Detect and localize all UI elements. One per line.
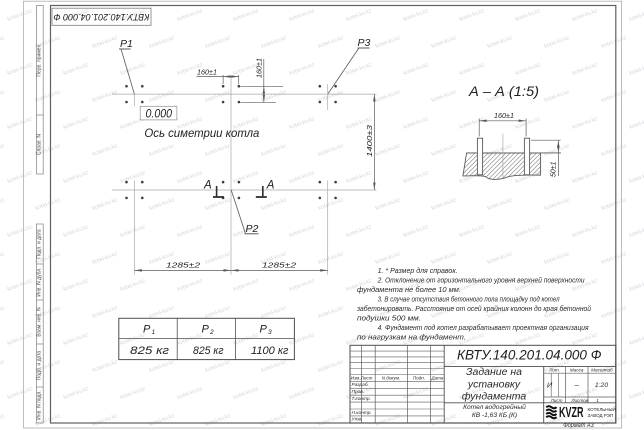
svg-text:1400±3: 1400±3 (365, 125, 374, 157)
svg-text:kotel-kv.kz: kotel-kv.kz (0, 251, 6, 266)
svg-text:kotel-kv.kz: kotel-kv.kz (120, 386, 147, 401)
svg-text:Р: Р (202, 324, 210, 336)
svg-text:kotel-kv.kz: kotel-kv.kz (375, 35, 402, 50)
svg-text:kotel-kv.kz: kotel-kv.kz (261, 359, 288, 374)
svg-text:kotel-kv.kz: kotel-kv.kz (149, 143, 176, 158)
svg-text:КВ -1,63 КБ (К): КВ -1,63 КБ (К) (472, 412, 517, 419)
svg-text:kotel-kv.kz: kotel-kv.kz (431, 251, 458, 266)
svg-text:kotel-kv.kz: kotel-kv.kz (35, 89, 62, 104)
svg-text:3. В случае отсутствия бет: 3. В случае отсутствия бетонного пола пл… (378, 295, 561, 304)
svg-text:Р2: Р2 (246, 223, 259, 235)
svg-text:подушки 500 мм.: подушки 500 мм. (357, 314, 421, 323)
svg-text:kotel-kv.kz: kotel-kv.kz (63, 386, 90, 401)
svg-text:kotel-kv.kz: kotel-kv.kz (92, 251, 119, 266)
svg-text:kotel-kv.kz: kotel-kv.kz (177, 224, 204, 239)
svg-text:1285±2: 1285±2 (262, 261, 296, 270)
svg-text:kotel-kv.kz: kotel-kv.kz (318, 89, 345, 104)
svg-text:kotel-kv.kz: kotel-kv.kz (572, 116, 599, 131)
svg-text:kotel-kv.kz: kotel-kv.kz (92, 35, 119, 50)
svg-text:kotel-kv.kz: kotel-kv.kz (0, 413, 6, 428)
svg-text:kotel-kv.kz: kotel-kv.kz (431, 197, 458, 212)
svg-text:Изм.Лист: Изм.Лист (351, 375, 373, 380)
svg-text:kotel-kv.kz: kotel-kv.kz (261, 197, 288, 212)
svg-text:kotel-kv.kz: kotel-kv.kz (515, 224, 542, 239)
svg-text:kotel-kv.kz: kotel-kv.kz (572, 8, 599, 23)
svg-text:КВТУ.140.201.04.000 Ф: КВТУ.140.201.04.000 Ф (457, 348, 602, 363)
svg-text:kotel-kv.kz: kotel-kv.kz (515, 62, 542, 77)
svg-text:Подп. и дата: Подп. и дата (36, 351, 42, 381)
svg-text:kotel-kv.kz: kotel-kv.kz (7, 332, 34, 347)
svg-text:kotel-kv.kz: kotel-kv.kz (487, 143, 514, 158)
svg-text:1100 кг: 1100 кг (251, 345, 289, 357)
svg-text:Инв. N дубл.: Инв. N дубл. (36, 267, 42, 296)
svg-text:50±1: 50±1 (549, 161, 558, 177)
svg-text:kotel-kv.kz: kotel-kv.kz (318, 143, 345, 158)
svg-text:kotel-kv.kz: kotel-kv.kz (431, 143, 458, 158)
svg-text:kotel-kv.kz: kotel-kv.kz (0, 143, 6, 158)
svg-text:KVZR: KVZR (559, 405, 584, 421)
svg-text:А – А (1:5): А – А (1:5) (468, 84, 539, 99)
svg-text:kotel-kv.kz: kotel-kv.kz (629, 278, 644, 293)
svg-text:установку: установку (467, 379, 521, 391)
svg-text:160±1: 160±1 (197, 67, 217, 76)
svg-text:Ось симетрии котла: Ось симетрии котла (144, 126, 259, 140)
svg-text:kotel-kv.kz: kotel-kv.kz (403, 224, 430, 239)
svg-text:kotel-kv.kz: kotel-kv.kz (346, 62, 373, 77)
svg-text:kotel-kv.kz: kotel-kv.kz (403, 62, 430, 77)
svg-text:kotel-kv.kz: kotel-kv.kz (0, 35, 6, 50)
svg-text:kotel-kv.kz: kotel-kv.kz (92, 413, 119, 428)
svg-text:Инв. N подл.: Инв. N подл. (36, 390, 42, 419)
svg-text:kotel-kv.kz: kotel-kv.kz (318, 251, 345, 266)
svg-text:по нагрузкам на фундамент.: по нагрузкам на фундамент. (357, 333, 466, 342)
svg-text:kotel-kv.kz: kotel-kv.kz (459, 62, 486, 77)
svg-text:0.000: 0.000 (146, 108, 173, 120)
svg-text:kotel-kv.kz: kotel-kv.kz (572, 170, 599, 185)
svg-text:kotel-kv.kz: kotel-kv.kz (233, 386, 260, 401)
svg-text:kotel-kv.kz: kotel-kv.kz (375, 251, 402, 266)
svg-text:kotel-kv.kz: kotel-kv.kz (261, 143, 288, 158)
svg-text:kotel-kv.kz: kotel-kv.kz (7, 62, 34, 77)
svg-text:kotel-kv.kz: kotel-kv.kz (572, 62, 599, 77)
svg-text:825 кг: 825 кг (130, 345, 170, 357)
svg-text:фундамента: фундамента (462, 391, 527, 403)
svg-text:Утв.: Утв. (352, 417, 363, 423)
svg-text:kotel-kv.kz: kotel-kv.kz (289, 170, 316, 185)
svg-text:kotel-kv.kz: kotel-kv.kz (318, 359, 345, 374)
svg-text:kotel-kv.kz: kotel-kv.kz (289, 224, 316, 239)
svg-text:3: 3 (268, 329, 272, 336)
svg-text:kotel-kv.kz: kotel-kv.kz (233, 278, 260, 293)
svg-text:КОТЕЛЬНЫЙ: КОТЕЛЬНЫЙ (588, 405, 616, 412)
svg-text:kotel-kv.kz: kotel-kv.kz (205, 89, 232, 104)
svg-text:kotel-kv.kz: kotel-kv.kz (177, 386, 204, 401)
svg-text:kotel-kv.kz: kotel-kv.kz (375, 89, 402, 104)
svg-text:kotel-kv.kz: kotel-kv.kz (375, 359, 402, 374)
svg-text:kotel-kv.kz: kotel-kv.kz (177, 170, 204, 185)
svg-text:kotel-kv.kz: kotel-kv.kz (289, 386, 316, 401)
svg-text:kotel-kv.kz: kotel-kv.kz (515, 8, 542, 23)
svg-text:Листов: Листов (570, 398, 588, 403)
svg-text:2: 2 (209, 329, 214, 336)
svg-text:kotel-kv.kz: kotel-kv.kz (601, 89, 628, 104)
svg-text:Дата: Дата (430, 375, 444, 380)
svg-text:kotel-kv.kz: kotel-kv.kz (205, 359, 232, 374)
svg-text:kotel-kv.kz: kotel-kv.kz (92, 143, 119, 158)
svg-text:Лит.: Лит. (548, 368, 560, 373)
svg-text:kotel-kv.kz: kotel-kv.kz (205, 251, 232, 266)
svg-text:kotel-kv.kz: kotel-kv.kz (629, 62, 644, 77)
svg-text:1:20: 1:20 (595, 382, 608, 389)
svg-text:И: И (547, 381, 553, 390)
svg-text:kotel-kv.kz: kotel-kv.kz (544, 251, 571, 266)
svg-text:kotel-kv.kz: kotel-kv.kz (515, 332, 542, 347)
svg-text:kotel-kv.kz: kotel-kv.kz (289, 278, 316, 293)
svg-text:Справ. N: Справ. N (36, 134, 42, 155)
svg-text:ЗАВОД РЭП: ЗАВОД РЭП (588, 413, 614, 418)
svg-text:Пров.: Пров. (352, 389, 365, 395)
svg-text:kotel-kv.kz: kotel-kv.kz (629, 116, 644, 131)
svg-text:N докум.: N докум. (382, 375, 401, 380)
svg-text:Р3: Р3 (358, 37, 371, 49)
svg-text:kotel-kv.kz: kotel-kv.kz (149, 305, 176, 320)
svg-text:kotel-kv.kz: kotel-kv.kz (205, 143, 232, 158)
svg-text:1. * Размер для справок.: 1. * Размер для справок. (378, 266, 458, 275)
svg-text:kotel-kv.kz: kotel-kv.kz (0, 359, 6, 374)
svg-text:kotel-kv.kz: kotel-kv.kz (63, 278, 90, 293)
svg-text:kotel-kv.kz: kotel-kv.kz (403, 8, 430, 23)
svg-text:kotel-kv.kz: kotel-kv.kz (0, 197, 6, 212)
svg-text:kotel-kv.kz: kotel-kv.kz (233, 8, 260, 23)
svg-text:kotel-kv.kz: kotel-kv.kz (346, 224, 373, 239)
svg-text:kotel-kv.kz: kotel-kv.kz (149, 35, 176, 50)
svg-text:kotel-kv.kz: kotel-kv.kz (318, 197, 345, 212)
svg-text:Задание на: Задание на (466, 366, 522, 378)
svg-text:kotel-kv.kz: kotel-kv.kz (7, 386, 34, 401)
svg-text:kotel-kv.kz: kotel-kv.kz (205, 305, 232, 320)
svg-text:kotel-kv.kz: kotel-kv.kz (318, 35, 345, 50)
svg-text:kotel-kv.kz: kotel-kv.kz (92, 359, 119, 374)
svg-text:–: – (574, 380, 580, 389)
svg-text:kotel-kv.kz: kotel-kv.kz (431, 35, 458, 50)
svg-text:Р: Р (143, 324, 151, 336)
svg-text:kotel-kv.kz: kotel-kv.kz (572, 224, 599, 239)
svg-text:kotel-kv.kz: kotel-kv.kz (629, 170, 644, 185)
svg-text:kotel-kv.kz: kotel-kv.kz (289, 332, 316, 347)
svg-text:Лист: Лист (550, 398, 563, 403)
svg-text:kotel-kv.kz: kotel-kv.kz (459, 224, 486, 239)
svg-text:kotel-kv.kz: kotel-kv.kz (544, 143, 571, 158)
svg-text:kotel-kv.kz: kotel-kv.kz (289, 62, 316, 77)
svg-text:kotel-kv.kz: kotel-kv.kz (487, 35, 514, 50)
svg-text:kotel-kv.kz: kotel-kv.kz (149, 413, 176, 428)
svg-text:4. Фундамент под котел раз: 4. Фундамент под котел разрабатывает про… (378, 323, 589, 332)
svg-text:kotel-kv.kz: kotel-kv.kz (149, 89, 176, 104)
svg-text:А: А (266, 180, 275, 192)
svg-text:kotel-kv.kz: kotel-kv.kz (601, 197, 628, 212)
svg-text:kotel-kv.kz: kotel-kv.kz (487, 251, 514, 266)
svg-text:1: 1 (152, 329, 156, 336)
svg-text:Котел водогрейный: Котел водогрейный (463, 403, 526, 411)
svg-text:Взам. инв. N: Взам. инв. N (36, 307, 42, 337)
svg-text:kotel-kv.kz: kotel-kv.kz (205, 413, 232, 428)
svg-text:kotel-kv.kz: kotel-kv.kz (205, 197, 232, 212)
svg-text:kotel-kv.kz: kotel-kv.kz (289, 116, 316, 131)
svg-text:kotel-kv.kz: kotel-kv.kz (515, 116, 542, 131)
svg-text:kotel-kv.kz: kotel-kv.kz (403, 170, 430, 185)
svg-text:А: А (203, 180, 212, 192)
svg-text:kotel-kv.kz: kotel-kv.kz (63, 62, 90, 77)
svg-text:Формат А3: Формат А3 (563, 423, 594, 429)
svg-text:kotel-kv.kz: kotel-kv.kz (63, 116, 90, 131)
svg-text:kotel-kv.kz: kotel-kv.kz (544, 197, 571, 212)
svg-text:kotel-kv.kz: kotel-kv.kz (233, 170, 260, 185)
svg-text:kotel-kv.kz: kotel-kv.kz (35, 197, 62, 212)
svg-text:kotel-kv.kz: kotel-kv.kz (92, 197, 119, 212)
svg-text:kotel-kv.kz: kotel-kv.kz (63, 170, 90, 185)
svg-text:kotel-kv.kz: kotel-kv.kz (120, 278, 147, 293)
svg-text:kotel-kv.kz: kotel-kv.kz (346, 170, 373, 185)
svg-text:kotel-kv.kz: kotel-kv.kz (120, 62, 147, 77)
svg-text:kotel-kv.kz: kotel-kv.kz (375, 143, 402, 158)
svg-text:160±1: 160±1 (494, 111, 514, 120)
svg-text:kotel-kv.kz: kotel-kv.kz (375, 413, 402, 428)
svg-text:825 кг: 825 кг (193, 345, 224, 357)
svg-text:Н.контр.: Н.контр. (352, 410, 372, 416)
svg-text:kotel-kv.kz: kotel-kv.kz (459, 8, 486, 23)
svg-text:kotel-kv.kz: kotel-kv.kz (261, 305, 288, 320)
svg-text:kotel-kv.kz: kotel-kv.kz (7, 278, 34, 293)
svg-text:kotel-kv.kz: kotel-kv.kz (318, 305, 345, 320)
svg-text:kotel-kv.kz: kotel-kv.kz (7, 224, 34, 239)
svg-text:kotel-kv.kz: kotel-kv.kz (375, 197, 402, 212)
svg-text:kotel-kv.kz: kotel-kv.kz (63, 332, 90, 347)
svg-text:Разраб.: Разраб. (352, 382, 369, 388)
svg-text:kotel-kv.kz: kotel-kv.kz (629, 224, 644, 239)
svg-text:kotel-kv.kz: kotel-kv.kz (289, 8, 316, 23)
svg-text:kotel-kv.kz: kotel-kv.kz (601, 35, 628, 50)
svg-text:kotel-kv.kz: kotel-kv.kz (346, 8, 373, 23)
svg-text:kotel-kv.kz: kotel-kv.kz (0, 89, 6, 104)
svg-text:kotel-kv.kz: kotel-kv.kz (601, 305, 628, 320)
svg-text:kotel-kv.kz: kotel-kv.kz (629, 332, 644, 347)
svg-text:Подп.: Подп. (413, 375, 425, 380)
svg-text:Подп. и дата: Подп. и дата (36, 229, 42, 259)
svg-text:kotel-kv.kz: kotel-kv.kz (205, 35, 232, 50)
svg-text:2. Отклонение от горизонтал: 2. Отклонение от горизонтального уровня … (377, 275, 585, 284)
svg-text:kotel-kv.kz: kotel-kv.kz (149, 197, 176, 212)
svg-text:kotel-kv.kz: kotel-kv.kz (544, 35, 571, 50)
svg-text:kotel-kv.kz: kotel-kv.kz (572, 332, 599, 347)
svg-text:фундамента не более 10 мм.: фундамента не более 10 мм. (357, 285, 461, 294)
svg-text:kotel-kv.kz: kotel-kv.kz (403, 116, 430, 131)
svg-text:kotel-kv.kz: kotel-kv.kz (544, 89, 571, 104)
svg-text:1285±2: 1285±2 (166, 261, 200, 270)
svg-text:1: 1 (596, 398, 599, 403)
svg-text:Р1: Р1 (120, 38, 133, 50)
svg-text:kotel-kv.kz: kotel-kv.kz (629, 386, 644, 401)
svg-text:kotel-kv.kz: kotel-kv.kz (7, 170, 34, 185)
svg-text:kotel-kv.kz: kotel-kv.kz (318, 413, 345, 428)
svg-text:kotel-kv.kz: kotel-kv.kz (92, 89, 119, 104)
svg-text:kotel-kv.kz: kotel-kv.kz (177, 8, 204, 23)
svg-text:kotel-kv.kz: kotel-kv.kz (177, 278, 204, 293)
svg-text:kotel-kv.kz: kotel-kv.kz (459, 116, 486, 131)
svg-text:забетонировать. Расстояние о: забетонировать. Расстояние от осей крайн… (356, 304, 591, 313)
svg-text:Масса: Масса (570, 368, 584, 373)
svg-text:Р: Р (260, 324, 268, 336)
svg-text:kotel-kv.kz: kotel-kv.kz (7, 116, 34, 131)
svg-text:kotel-kv.kz: kotel-kv.kz (261, 35, 288, 50)
svg-text:kotel-kv.kz: kotel-kv.kz (63, 224, 90, 239)
svg-text:kotel-kv.kz: kotel-kv.kz (0, 305, 6, 320)
svg-text:Т.контр.: Т.контр. (352, 396, 371, 402)
svg-text:kotel-kv.kz: kotel-kv.kz (261, 413, 288, 428)
svg-text:160±1: 160±1 (255, 58, 264, 78)
svg-text:kotel-kv.kz: kotel-kv.kz (92, 305, 119, 320)
svg-text:kotel-kv.kz: kotel-kv.kz (149, 359, 176, 374)
svg-text:kotel-kv.kz: kotel-kv.kz (120, 224, 147, 239)
svg-text:kotel-kv.kz: kotel-kv.kz (601, 143, 628, 158)
svg-text:КВТУ.140.201.04.000 Ф: КВТУ.140.201.04.000 Ф (54, 12, 150, 22)
svg-text:kotel-kv.kz: kotel-kv.kz (629, 8, 644, 23)
svg-text:Перв. примен.: Перв. примен. (36, 43, 42, 76)
svg-text:kotel-kv.kz: kotel-kv.kz (601, 251, 628, 266)
svg-text:kotel-kv.kz: kotel-kv.kz (431, 89, 458, 104)
svg-text:kotel-kv.kz: kotel-kv.kz (487, 197, 514, 212)
svg-text:kotel-kv.kz: kotel-kv.kz (7, 8, 34, 23)
svg-text:Масштаб: Масштаб (591, 368, 613, 373)
